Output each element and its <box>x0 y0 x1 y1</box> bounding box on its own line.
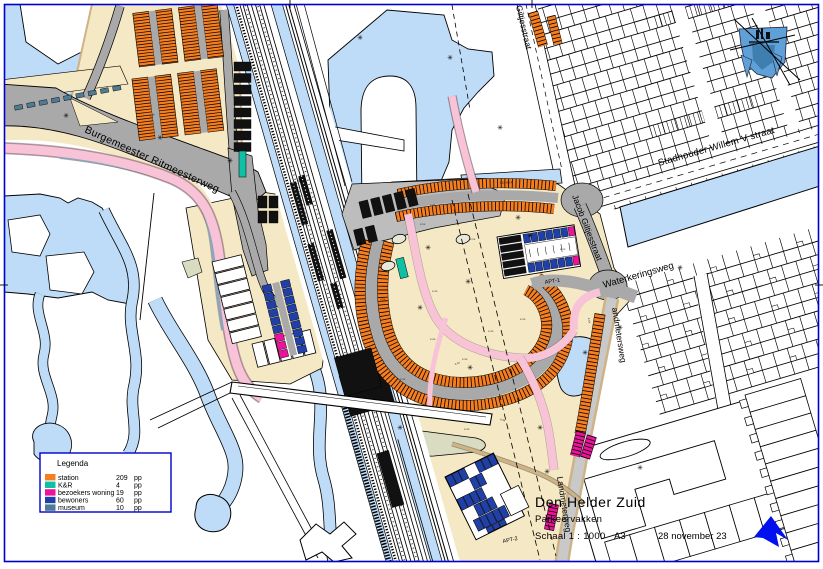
svg-text:60: 60 <box>116 498 124 505</box>
svg-text:pp: pp <box>134 505 142 512</box>
svg-text:x.xx: x.xx <box>560 247 566 251</box>
svg-text:x.xx: x.xx <box>400 377 406 381</box>
svg-text:✳: ✳ <box>467 364 473 372</box>
svg-text:✳: ✳ <box>582 349 588 357</box>
svg-text:A3: A3 <box>614 531 626 542</box>
svg-text:Legenda: Legenda <box>57 459 89 468</box>
svg-text:Parkeervakken: Parkeervakken <box>535 514 602 525</box>
svg-text:Den Helder Zuid: Den Helder Zuid <box>535 494 646 510</box>
svg-text:✳: ✳ <box>417 304 423 312</box>
svg-text:✳: ✳ <box>63 112 69 120</box>
svg-text:19: 19 <box>116 490 124 497</box>
svg-text:✳: ✳ <box>397 424 403 432</box>
svg-text:28 november 23: 28 november 23 <box>658 531 727 542</box>
svg-text:bezoekers woning: bezoekers woning <box>58 490 115 497</box>
svg-text:x.xx: x.xx <box>462 357 468 361</box>
svg-text:✳: ✳ <box>544 468 550 476</box>
svg-text:pp: pp <box>134 475 142 482</box>
svg-text:✳: ✳ <box>357 240 363 248</box>
svg-text:bewoners: bewoners <box>58 498 89 505</box>
svg-text:✳: ✳ <box>527 232 533 240</box>
svg-text:x.xx: x.xx <box>432 289 438 293</box>
svg-text:209: 209 <box>116 475 128 482</box>
svg-text:✳: ✳ <box>497 124 503 132</box>
svg-text:✳: ✳ <box>637 464 643 472</box>
svg-text:10: 10 <box>116 505 124 512</box>
svg-text:✳: ✳ <box>157 134 163 142</box>
svg-text:✳: ✳ <box>465 278 471 286</box>
svg-text:✳: ✳ <box>297 177 303 185</box>
svg-text:x.xx: x.xx <box>430 203 436 207</box>
svg-text:pp: pp <box>134 482 142 489</box>
svg-text:✳: ✳ <box>677 264 683 272</box>
svg-text:station: station <box>58 475 79 482</box>
svg-text:pp: pp <box>134 490 142 497</box>
svg-text:x.xx: x.xx <box>420 222 426 226</box>
svg-text:KD -8.14: KD -8.14 <box>500 180 513 185</box>
svg-text:x.xx: x.xx <box>488 329 494 333</box>
svg-text:✳: ✳ <box>357 34 363 42</box>
svg-text:4: 4 <box>116 482 120 489</box>
svg-text:x.xx: x.xx <box>470 237 476 241</box>
svg-text:✳: ✳ <box>515 214 521 222</box>
svg-text:✳: ✳ <box>425 244 431 252</box>
svg-text:x.xx: x.xx <box>380 297 386 301</box>
svg-text:x.xx: x.xx <box>464 427 470 431</box>
svg-text:K&R: K&R <box>58 482 72 489</box>
svg-text:pp: pp <box>134 498 142 505</box>
svg-text:museum: museum <box>58 505 85 512</box>
svg-text:Schaal 1 : 1000: Schaal 1 : 1000 <box>535 531 606 542</box>
svg-text:✳: ✳ <box>227 157 233 165</box>
svg-text:✳: ✳ <box>537 424 543 432</box>
svg-text:x.xx: x.xx <box>430 337 436 341</box>
svg-text:x.xx: x.xx <box>520 317 526 321</box>
svg-text:✳: ✳ <box>447 54 453 62</box>
